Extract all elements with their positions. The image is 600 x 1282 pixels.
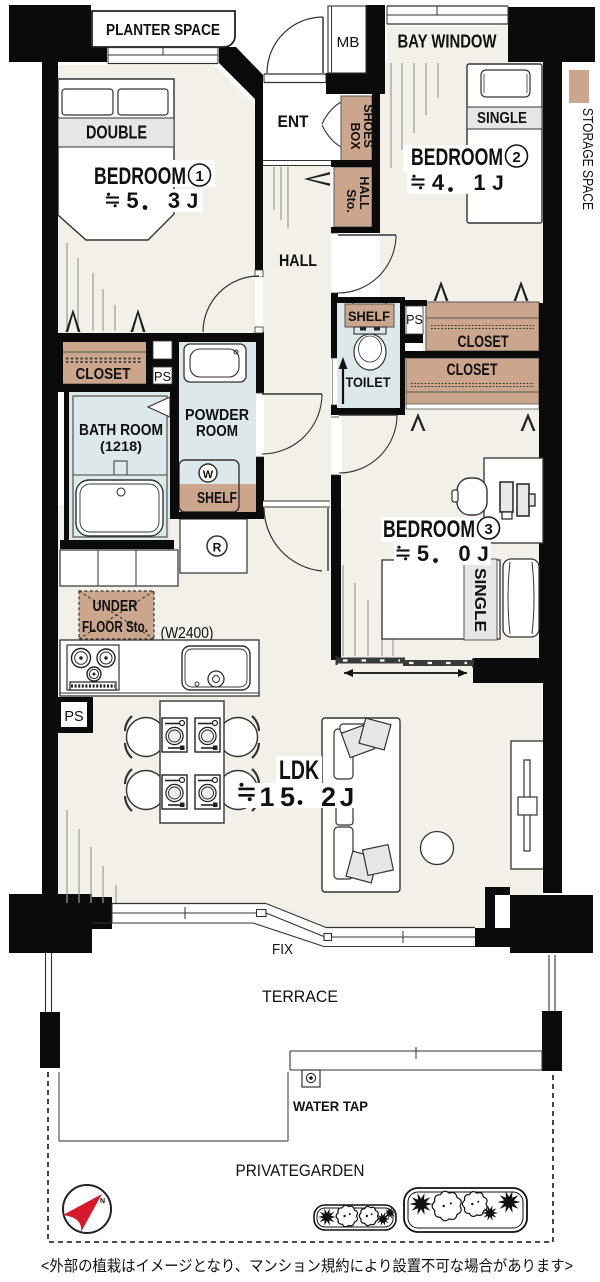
svg-text:BATH ROOM: BATH ROOM bbox=[79, 422, 163, 439]
svg-text:BEDROOM: BEDROOM bbox=[94, 163, 186, 190]
svg-text:FIX: FIX bbox=[272, 941, 293, 958]
svg-text:SHELF: SHELF bbox=[197, 490, 237, 507]
svg-text:3: 3 bbox=[484, 521, 492, 538]
svg-text:POWDER: POWDER bbox=[185, 407, 249, 424]
svg-text:1: 1 bbox=[195, 168, 203, 185]
svg-text:1: 1 bbox=[473, 170, 485, 195]
svg-text:PS: PS bbox=[406, 313, 423, 327]
svg-text:BEDROOM: BEDROOM bbox=[411, 144, 503, 171]
svg-text:UNDER: UNDER bbox=[93, 598, 138, 615]
svg-text:5: 5 bbox=[280, 782, 295, 812]
svg-text:TOILET: TOILET bbox=[346, 374, 391, 390]
svg-text:SHELF: SHELF bbox=[348, 308, 390, 324]
svg-text:W: W bbox=[203, 469, 214, 481]
svg-text:SINGLE: SINGLE bbox=[477, 110, 527, 127]
svg-text:N: N bbox=[100, 1198, 105, 1205]
svg-text:Sto.: Sto. bbox=[344, 189, 358, 213]
svg-text:J: J bbox=[187, 190, 199, 213]
svg-text:CLOSET: CLOSET bbox=[458, 333, 509, 351]
svg-text:ENT: ENT bbox=[278, 112, 310, 131]
svg-text:PS: PS bbox=[64, 709, 83, 725]
svg-text:LDK: LDK bbox=[279, 755, 319, 785]
svg-text:BAY WINDOW: BAY WINDOW bbox=[398, 32, 497, 52]
svg-text:DOUBLE: DOUBLE bbox=[86, 123, 147, 143]
svg-text:SINGLE: SINGLE bbox=[471, 568, 488, 632]
svg-text:R: R bbox=[213, 541, 222, 555]
svg-text:HALL: HALL bbox=[279, 251, 317, 270]
svg-text:BOX: BOX bbox=[348, 122, 362, 150]
svg-text:3: 3 bbox=[168, 188, 180, 213]
svg-text:PLANTER SPACE: PLANTER SPACE bbox=[106, 22, 220, 39]
svg-text:BEDROOM: BEDROOM bbox=[383, 516, 475, 543]
svg-text:MB: MB bbox=[337, 34, 360, 51]
svg-text:CLOSET: CLOSET bbox=[76, 366, 131, 383]
svg-text:ROOM: ROOM bbox=[196, 423, 238, 440]
svg-text:PRIVATEGARDEN: PRIVATEGARDEN bbox=[236, 1162, 365, 1180]
svg-text:1: 1 bbox=[259, 782, 274, 812]
svg-text:HALL: HALL bbox=[357, 176, 371, 210]
svg-text:J: J bbox=[477, 543, 489, 566]
svg-text:PS: PS bbox=[154, 369, 172, 384]
svg-text:WATER TAP: WATER TAP bbox=[293, 1098, 368, 1114]
svg-text:(1218): (1218) bbox=[100, 438, 142, 454]
svg-text:J: J bbox=[340, 782, 354, 812]
svg-text:5: 5 bbox=[126, 188, 138, 213]
svg-text:TERRACE: TERRACE bbox=[262, 988, 338, 1006]
svg-text:2: 2 bbox=[512, 149, 520, 166]
svg-text:FLOOR Sto.: FLOOR Sto. bbox=[82, 619, 148, 636]
svg-text:4: 4 bbox=[432, 170, 445, 195]
svg-text:CLOSET: CLOSET bbox=[447, 361, 498, 379]
svg-text:J: J bbox=[492, 172, 504, 195]
svg-text:2: 2 bbox=[321, 782, 336, 812]
svg-text:0: 0 bbox=[458, 541, 470, 566]
svg-text:5: 5 bbox=[417, 541, 429, 566]
svg-text:STORAGE SPACE: STORAGE SPACE bbox=[579, 108, 596, 210]
svg-text:<外部の植栽はイメージとなり、マンション規約により設置不可な: <外部の植栽はイメージとなり、マンション規約により設置不可な場合があります> bbox=[41, 1257, 573, 1275]
